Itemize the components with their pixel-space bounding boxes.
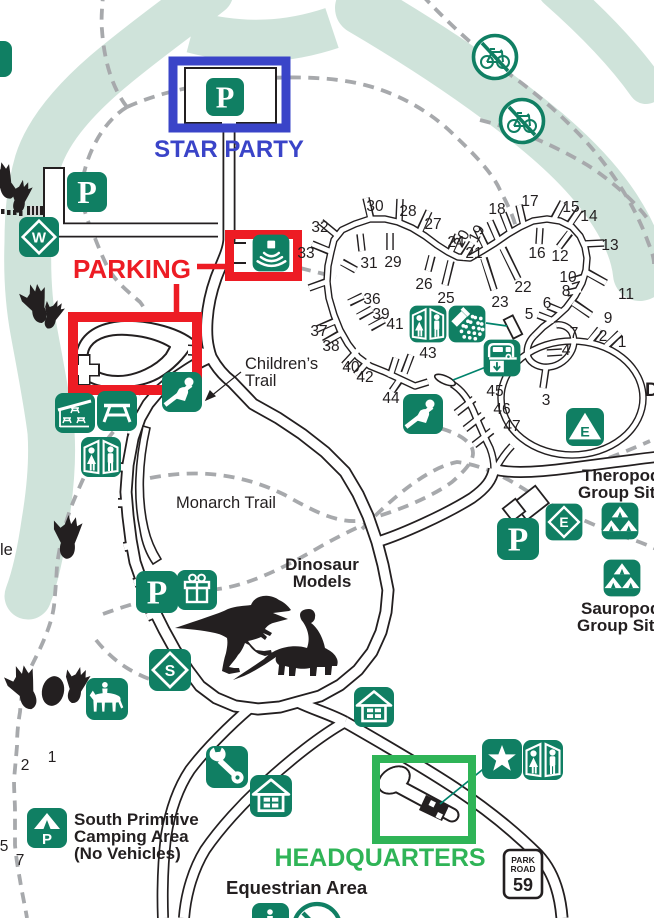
svg-text:STAR PARTY: STAR PARTY (154, 136, 304, 163)
svg-text:Monarch Trail: Monarch Trail (176, 494, 276, 512)
svg-text:PARKING: PARKING (73, 254, 191, 284)
svg-text:ROAD: ROAD (510, 864, 535, 874)
svg-text:5: 5 (525, 306, 534, 323)
svg-text:Children’s: Children’s (245, 355, 318, 373)
svg-text:30: 30 (366, 198, 384, 215)
svg-text:Models: Models (293, 572, 352, 591)
svg-text:28: 28 (399, 203, 416, 220)
svg-text:18: 18 (488, 201, 505, 218)
svg-text:2: 2 (599, 328, 608, 345)
svg-text:Group Site: Group Site (577, 616, 654, 635)
svg-text:7: 7 (570, 325, 579, 342)
svg-text:11: 11 (618, 286, 634, 303)
svg-text:1: 1 (618, 334, 627, 351)
svg-text:3: 3 (542, 392, 551, 409)
svg-text:Equestrian Area: Equestrian Area (226, 877, 368, 898)
svg-text:Trail: Trail (245, 372, 276, 390)
svg-text:33: 33 (297, 245, 314, 262)
svg-text:41: 41 (386, 316, 403, 333)
svg-text:22: 22 (514, 279, 531, 296)
svg-text:32: 32 (311, 219, 328, 236)
svg-text:27: 27 (424, 216, 441, 233)
svg-text:2: 2 (21, 757, 30, 774)
svg-text:12: 12 (551, 248, 568, 265)
svg-text:59: 59 (513, 875, 533, 895)
svg-text:16: 16 (528, 245, 545, 262)
svg-text:26: 26 (415, 276, 432, 293)
svg-text:45: 45 (486, 383, 503, 400)
svg-text:31: 31 (360, 255, 377, 272)
svg-text:29: 29 (384, 254, 401, 271)
svg-text:38: 38 (322, 338, 339, 355)
svg-text:Group Site: Group Site (578, 483, 654, 502)
svg-text:42: 42 (356, 369, 373, 386)
svg-text:9: 9 (604, 310, 613, 327)
svg-text:4: 4 (562, 342, 571, 359)
svg-text:44: 44 (382, 390, 400, 407)
svg-text:23: 23 (491, 294, 508, 311)
svg-text:21: 21 (465, 245, 482, 262)
svg-text:43: 43 (419, 345, 436, 362)
svg-text:46: 46 (493, 401, 510, 418)
svg-text:14: 14 (580, 208, 598, 225)
svg-text:7: 7 (16, 852, 25, 869)
svg-text:6: 6 (543, 295, 552, 312)
svg-text:8: 8 (562, 283, 571, 300)
svg-text:1: 1 (48, 749, 57, 766)
svg-text:HEADQUARTERS: HEADQUARTERS (274, 844, 485, 872)
svg-text:47: 47 (503, 418, 520, 435)
svg-text:5: 5 (0, 838, 8, 855)
svg-text:25: 25 (437, 290, 454, 307)
svg-text:le: le (0, 541, 13, 559)
svg-text:D: D (645, 380, 654, 401)
svg-text:(No Vehicles): (No Vehicles) (74, 844, 181, 863)
svg-text:13: 13 (601, 237, 618, 254)
svg-text:15: 15 (562, 199, 579, 216)
svg-text:17: 17 (521, 193, 538, 210)
